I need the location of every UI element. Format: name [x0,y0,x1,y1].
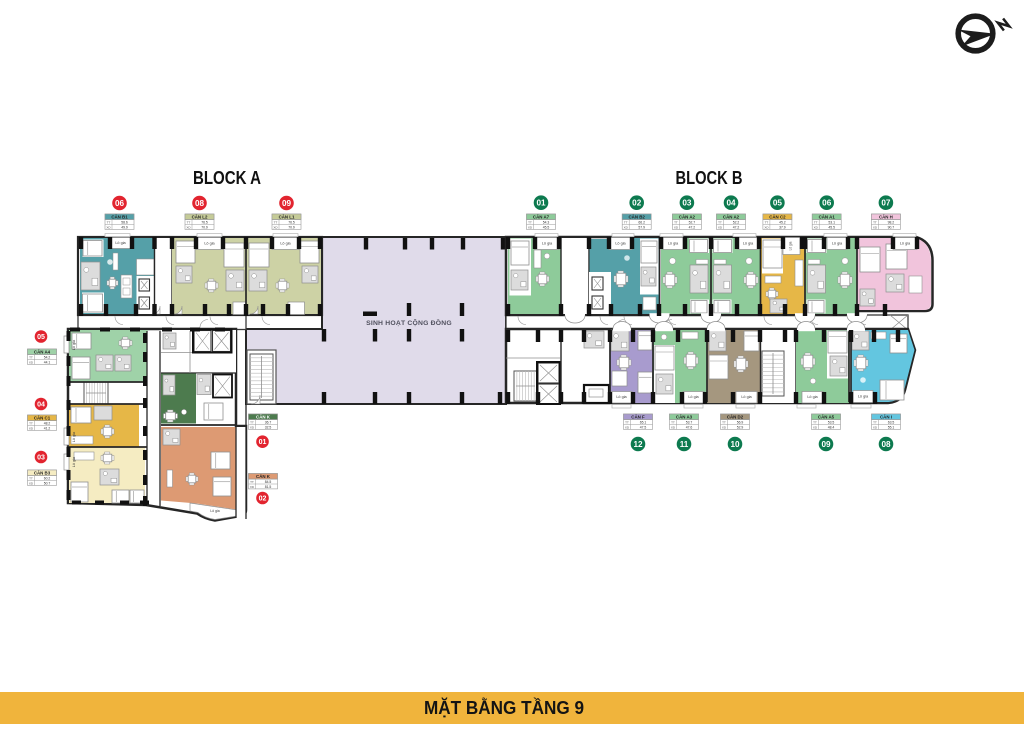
svg-text:Lô gia: Lô gia [542,242,553,246]
svg-text:Lô gia: Lô gia [743,242,754,246]
svg-text:TT: TT [107,220,111,224]
svg-text:CĂN K: CĂN K [256,414,271,419]
svg-text:Lô gia: Lô gia [210,509,219,513]
svg-text:50.7: 50.7 [44,481,51,485]
svg-text:Lô gia: Lô gia [741,395,752,399]
svg-text:Lô gia: Lô gia [789,241,793,250]
svg-text:05: 05 [773,199,783,208]
svg-text:Lô gia: Lô gia [115,241,126,245]
svg-text:Lô gia: Lô gia [72,431,76,442]
svg-text:CĂN F: CĂN F [631,414,645,419]
svg-text:TT: TT [674,220,678,224]
svg-text:08: 08 [195,199,205,208]
svg-text:98.2: 98.2 [888,220,895,224]
svg-text:TT: TT [250,420,254,424]
svg-text:53.5: 53.5 [828,420,835,424]
svg-text:TT: TT [722,420,726,424]
svg-text:TT: TT [765,220,769,224]
svg-text:10: 10 [730,440,740,449]
svg-text:03: 03 [37,455,45,462]
svg-text:70.9: 70.9 [201,225,208,229]
svg-text:54.2: 54.2 [44,355,51,359]
svg-text:Lô gia: Lô gia [72,456,76,467]
svg-text:55.1: 55.1 [888,425,895,429]
svg-text:70.9: 70.9 [288,225,295,229]
svg-text:BLOCK A: BLOCK A [193,167,261,188]
svg-text:Lô gia: Lô gia [204,242,215,246]
svg-text:Lô gia: Lô gia [688,395,699,399]
svg-text:04: 04 [726,199,736,208]
svg-text:81.5: 81.5 [265,485,272,489]
svg-text:01: 01 [259,439,267,446]
svg-text:TT: TT [813,420,817,424]
svg-text:66.2: 66.2 [638,220,645,224]
svg-text:CĂN A1: CĂN A1 [819,214,836,219]
svg-text:CĂN K: CĂN K [256,474,271,479]
svg-text:58.6: 58.6 [121,220,128,224]
svg-text:65.1: 65.1 [640,420,647,424]
svg-text:CĂN H: CĂN H [879,214,893,219]
svg-text:53.7: 53.7 [686,420,693,424]
svg-text:02: 02 [259,496,267,503]
svg-text:54.3: 54.3 [543,220,550,224]
svg-text:45.2: 45.2 [779,220,786,224]
svg-text:TT: TT [625,420,629,424]
svg-text:CĂN B1: CĂN B1 [111,214,128,219]
svg-text:04: 04 [37,402,45,409]
svg-text:90.7: 90.7 [888,225,895,229]
svg-text:CĂN A5: CĂN A5 [818,414,835,419]
svg-text:52.2: 52.2 [733,220,740,224]
svg-text:CĂN C1: CĂN C1 [34,415,51,420]
svg-text:49.9: 49.9 [121,225,128,229]
svg-text:Lô gia: Lô gia [807,395,818,399]
svg-text:Lô gia: Lô gia [668,242,679,246]
svg-text:TT: TT [624,220,628,224]
svg-text:Lô gia: Lô gia [832,242,843,246]
svg-text:Lô gia: Lô gia [858,395,869,399]
svg-text:36.7: 36.7 [265,420,272,424]
svg-text:63.5: 63.5 [888,420,895,424]
svg-text:Lô gia: Lô gia [280,242,291,246]
svg-text:CĂN A2: CĂN A2 [679,214,696,219]
svg-text:07: 07 [881,199,891,208]
svg-text:TT: TT [274,220,278,224]
svg-text:52.9: 52.9 [737,425,744,429]
svg-text:48.4: 48.4 [828,425,835,429]
svg-text:09: 09 [282,199,292,208]
svg-text:CĂN A3: CĂN A3 [676,414,693,419]
svg-text:TT: TT [29,355,33,359]
svg-text:Lô gia: Lô gia [615,242,626,246]
svg-text:53.1: 53.1 [828,220,835,224]
svg-text:CĂN B3: CĂN B3 [34,470,51,475]
svg-text:TT: TT [187,220,191,224]
svg-text:57.9: 57.9 [638,225,645,229]
svg-text:Lô gia: Lô gia [900,242,911,246]
svg-text:CĂN I: CĂN I [880,414,892,419]
svg-text:48.2: 48.2 [44,421,51,425]
svg-text:47.5: 47.5 [640,425,647,429]
svg-text:Lô gia: Lô gia [72,339,76,350]
svg-text:45.5: 45.5 [543,225,550,229]
svg-text:TT: TT [718,220,722,224]
svg-text:CĂN D2: CĂN D2 [727,414,744,419]
svg-text:08: 08 [881,440,891,449]
svg-text:47.2: 47.2 [689,225,696,229]
svg-text:TT: TT [29,421,33,425]
svg-text:32.5: 32.5 [265,425,272,429]
svg-text:TT: TT [528,220,532,224]
svg-text:60.2: 60.2 [44,476,51,480]
svg-text:TT: TT [250,480,254,484]
svg-text:76.5: 76.5 [288,220,295,224]
svg-text:12: 12 [633,440,643,449]
svg-text:41.2: 41.2 [44,426,51,430]
svg-text:CĂN L1: CĂN L1 [279,214,295,219]
svg-text:TT: TT [671,420,675,424]
svg-text:Lô gia: Lô gia [616,395,627,399]
svg-text:02: 02 [632,199,642,208]
svg-text:84.5: 84.5 [265,480,272,484]
svg-text:CĂN L2: CĂN L2 [192,214,208,219]
svg-text:47.6: 47.6 [686,425,693,429]
svg-text:01: 01 [536,199,546,208]
svg-text:TT: TT [814,220,818,224]
svg-text:05: 05 [37,334,45,341]
svg-text:47.2: 47.2 [733,225,740,229]
svg-text:CĂN A4: CĂN A4 [34,349,51,354]
svg-text:03: 03 [682,199,692,208]
svg-text:44.1: 44.1 [44,360,51,364]
svg-text:11: 11 [680,440,689,449]
svg-text:TT: TT [873,420,877,424]
svg-text:06: 06 [115,199,125,208]
svg-text:09: 09 [821,440,831,449]
svg-text:56.9: 56.9 [737,420,744,424]
svg-text:45.5: 45.5 [828,225,835,229]
svg-text:52.7: 52.7 [689,220,696,224]
svg-text:BLOCK B: BLOCK B [676,167,743,188]
svg-text:TT: TT [29,476,33,480]
svg-text:MẶT BẰNG TẦNG 9: MẶT BẰNG TẦNG 9 [424,697,584,718]
svg-text:CĂN A7: CĂN A7 [533,214,550,219]
svg-text:TT: TT [873,220,877,224]
svg-text:76.5: 76.5 [201,220,208,224]
svg-text:37.9: 37.9 [779,225,786,229]
svg-text:CĂN A2: CĂN A2 [723,214,740,219]
svg-text:CĂN B2: CĂN B2 [629,214,646,219]
svg-text:06: 06 [822,199,832,208]
svg-text:CĂN C2: CĂN C2 [769,214,786,219]
